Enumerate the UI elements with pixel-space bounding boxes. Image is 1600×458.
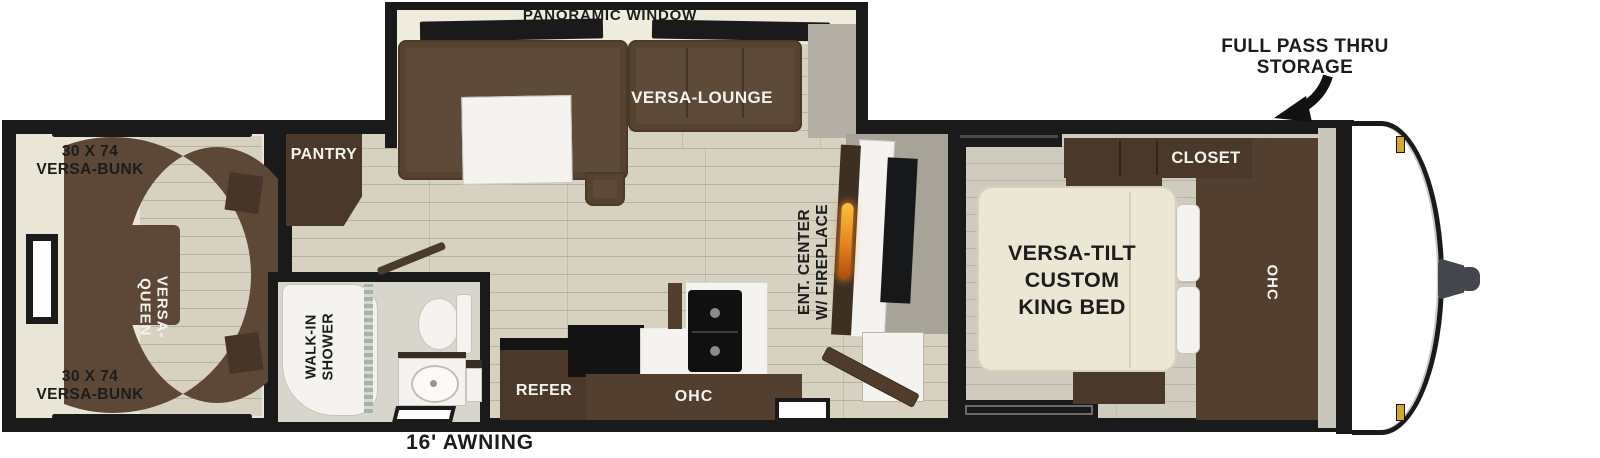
- bunk-bottom-label: 30 X 74 VERSA-BUNK: [20, 368, 160, 404]
- rear-corner-cabinet-top: [225, 172, 264, 214]
- bedroom-ohc-label: OHC: [1263, 253, 1280, 313]
- panoramic-window-right: [652, 19, 830, 41]
- bunk-top-label: 30 X 74 VERSA-BUNK: [20, 143, 160, 179]
- bedroom-wardrobe-column: [1196, 138, 1318, 420]
- rear-slide-rail-bottom: [52, 414, 252, 419]
- slideout-side-wall: [808, 24, 856, 138]
- rear-slide-rail-top: [52, 132, 252, 137]
- hitch-knob: [1458, 267, 1480, 291]
- kitchen-ohc-label: OHC: [586, 388, 802, 406]
- clearance-light-bottom: [1396, 404, 1405, 421]
- vanity-shelf-edge: [466, 360, 482, 368]
- bath-mat: [392, 406, 456, 423]
- king-bed-label: VERSA-TILT CUSTOM KING BED: [982, 240, 1162, 321]
- front-cap: [1352, 121, 1444, 435]
- bedroom-divider-wall: [948, 120, 966, 432]
- storage-arrow-icon: [1268, 72, 1338, 126]
- bedroom-window-top: [956, 130, 1062, 147]
- clearance-light-top: [1396, 136, 1405, 153]
- floorplan-canvas: 30 X 74 VERSA-BUNK 30 X 74 VERSA-BUNK VE…: [0, 0, 1600, 458]
- stove: [568, 325, 644, 377]
- lounge-right-seat: [628, 40, 802, 132]
- bed-pillow-top: [1176, 204, 1200, 282]
- shower-glass: [364, 284, 373, 416]
- toilet-tank: [456, 294, 472, 354]
- refer-label: REFER: [500, 382, 588, 400]
- kitchen-sink: [688, 290, 742, 372]
- fireplace-flame-icon: [838, 203, 854, 280]
- lounge-table: [461, 95, 573, 185]
- bed-foot-cabinet: [1073, 372, 1165, 404]
- pass-thru-storage-strip: [1318, 128, 1338, 428]
- walk-in-shower-label: WALK-IN SHOWER: [303, 292, 336, 402]
- entry-step: [775, 398, 830, 422]
- vanity-sink: [398, 358, 466, 406]
- lounge-chaise: [585, 172, 625, 206]
- closet-label: CLOSET: [1160, 149, 1252, 168]
- awning-label: 16' AWNING: [360, 431, 580, 455]
- bed-pillow-bottom: [1176, 286, 1200, 354]
- panoramic-window-left: [420, 18, 603, 41]
- pantry-label: PANTRY: [284, 146, 364, 164]
- counter-end-panel: [668, 283, 682, 329]
- ent-center-label: ENT. CENTER W/ FIREPLACE: [796, 187, 840, 337]
- toilet-bowl: [418, 298, 460, 350]
- versa-queen-label: VERSA-QUEEN: [136, 247, 171, 367]
- vanity-shelf: [466, 368, 482, 402]
- rear-window: [26, 234, 58, 324]
- versa-lounge-label: VERSA-LOUNGE: [612, 88, 792, 108]
- rear-corner-cabinet-bottom: [225, 332, 264, 374]
